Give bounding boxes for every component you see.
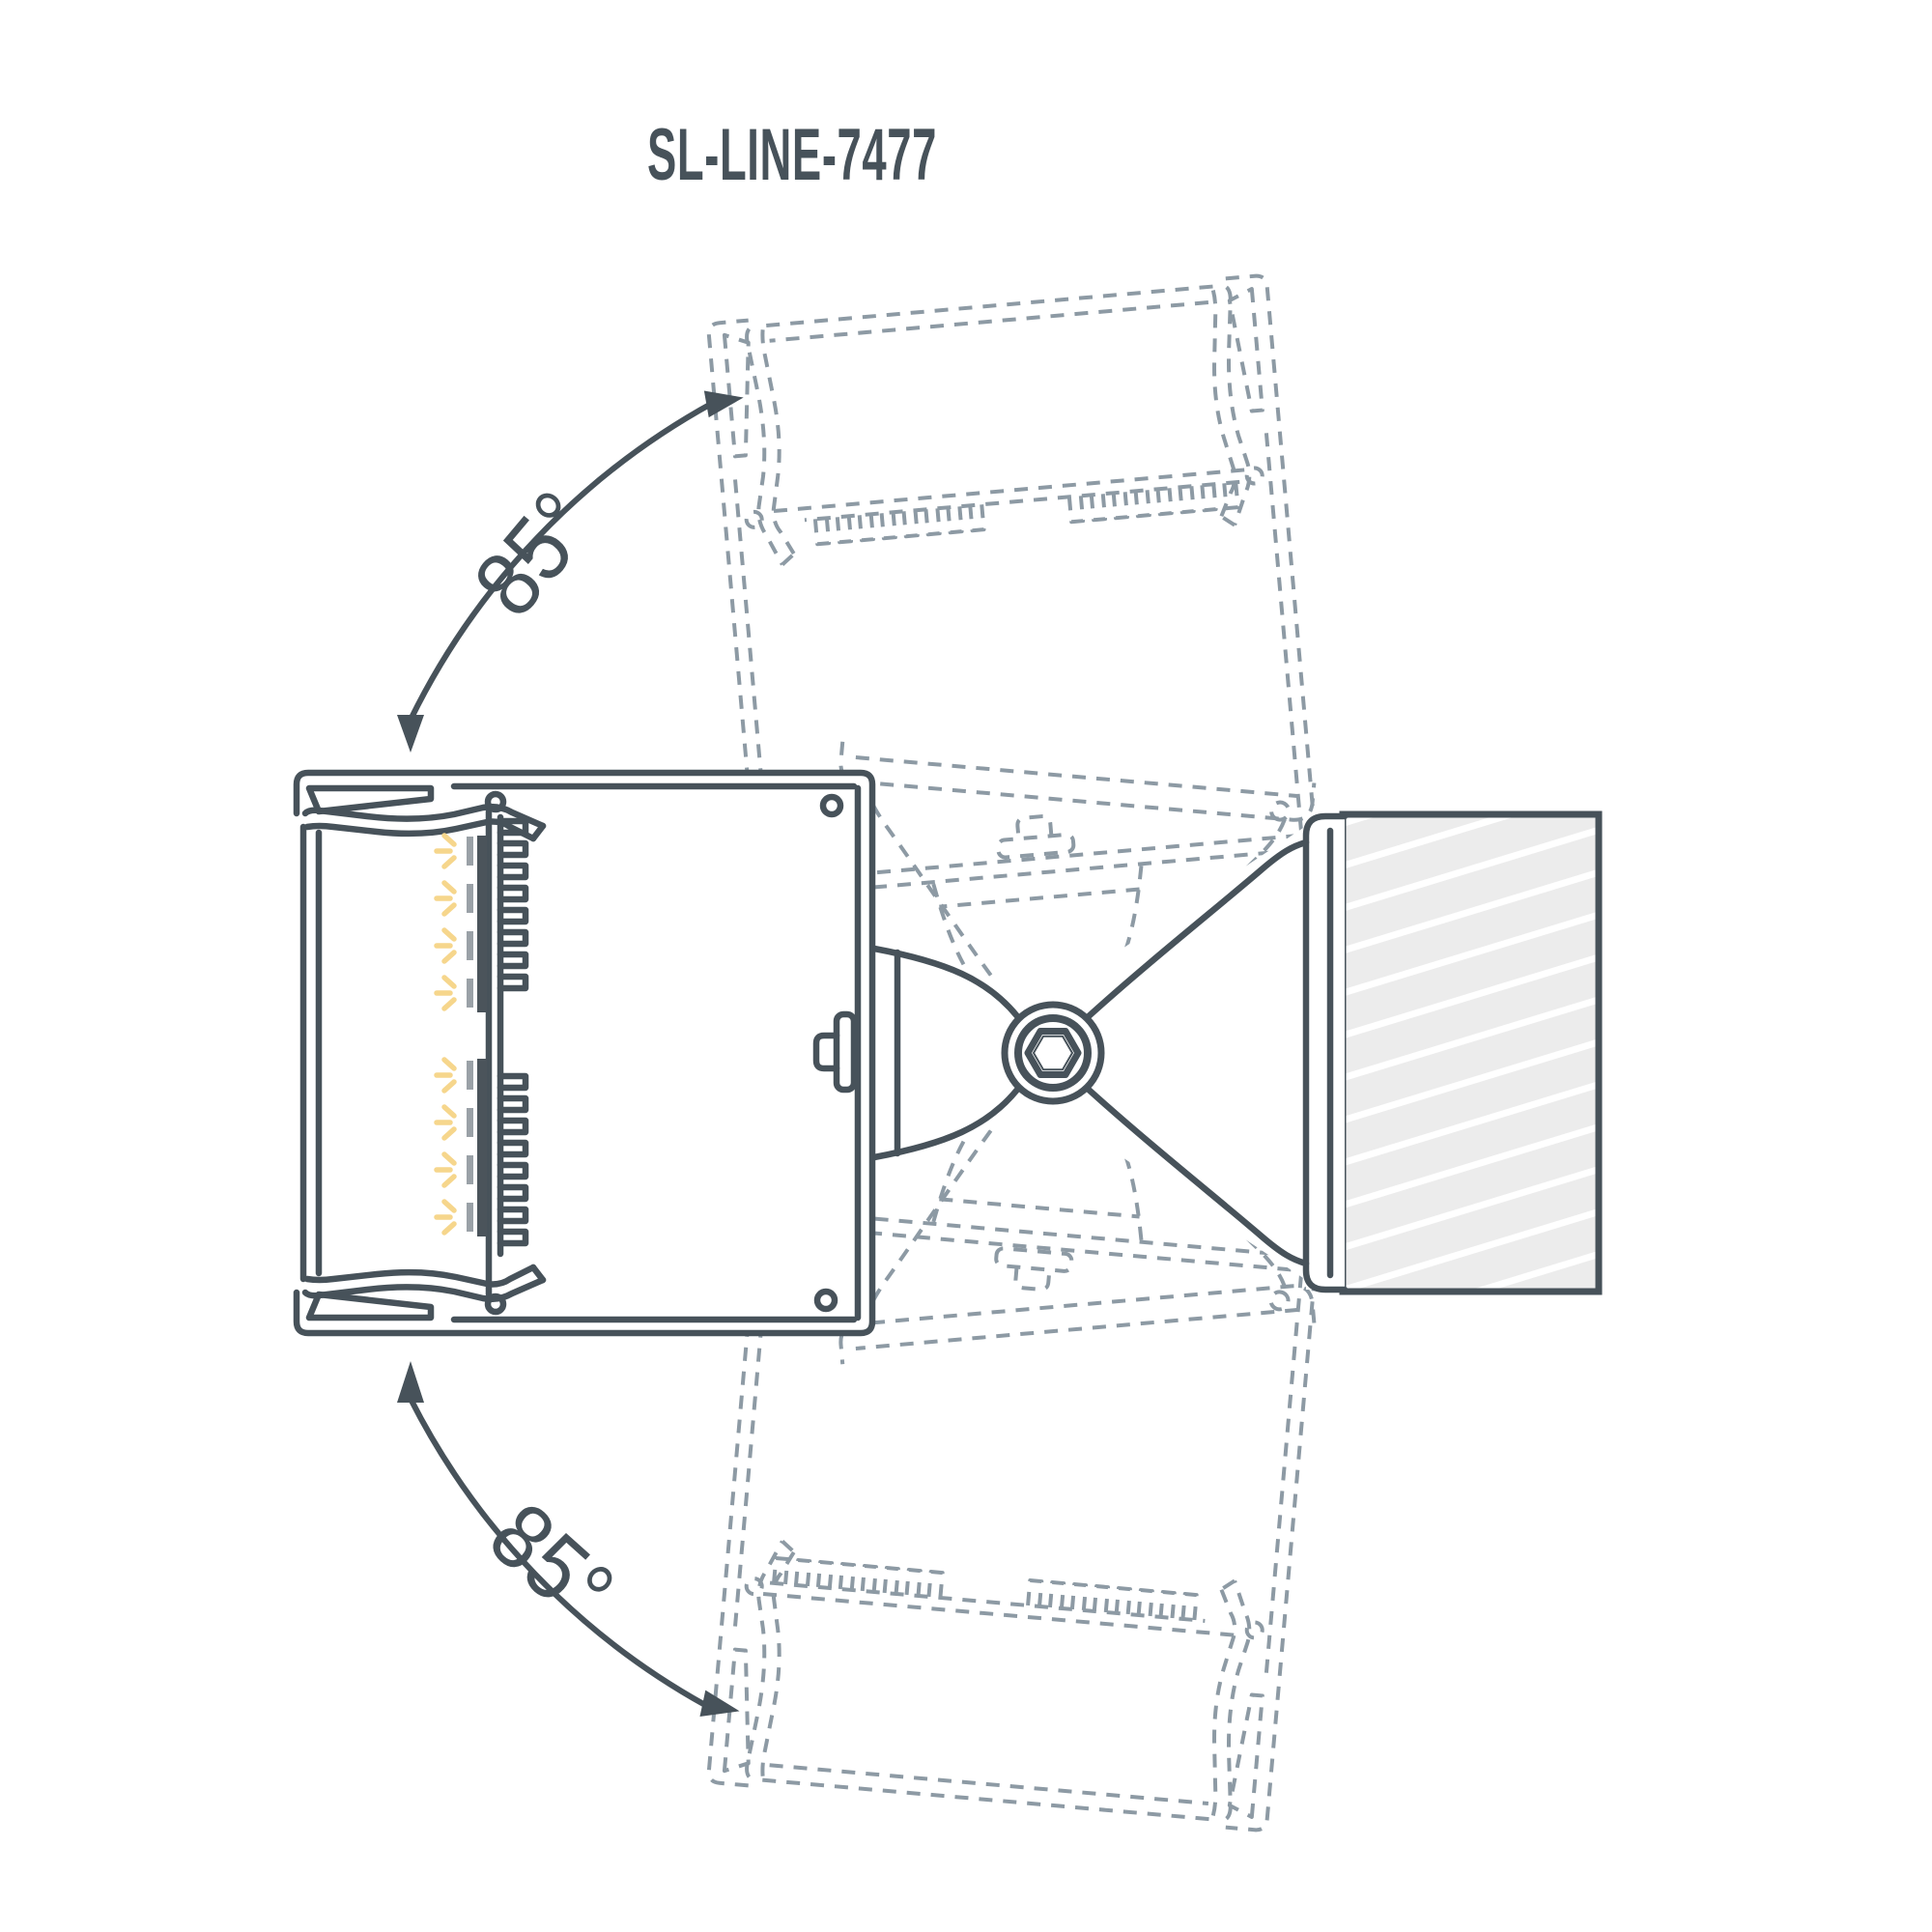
arrow-right-icon [699,1690,742,1724]
angle-label-bottom: 85° [470,1483,633,1644]
technical-diagram-page: SL-LINE-7477 85° 85° [0,0,1932,1932]
arrow-up-icon [397,1361,424,1403]
arrow-right-icon [704,384,746,417]
arrow-down-icon [397,715,424,753]
drawing-title: SL-LINE-7477 [647,114,937,196]
wall-section [1343,814,1599,1292]
luminaire-rotation-diagram: SL-LINE-7477 85° 85° [0,0,1932,1932]
